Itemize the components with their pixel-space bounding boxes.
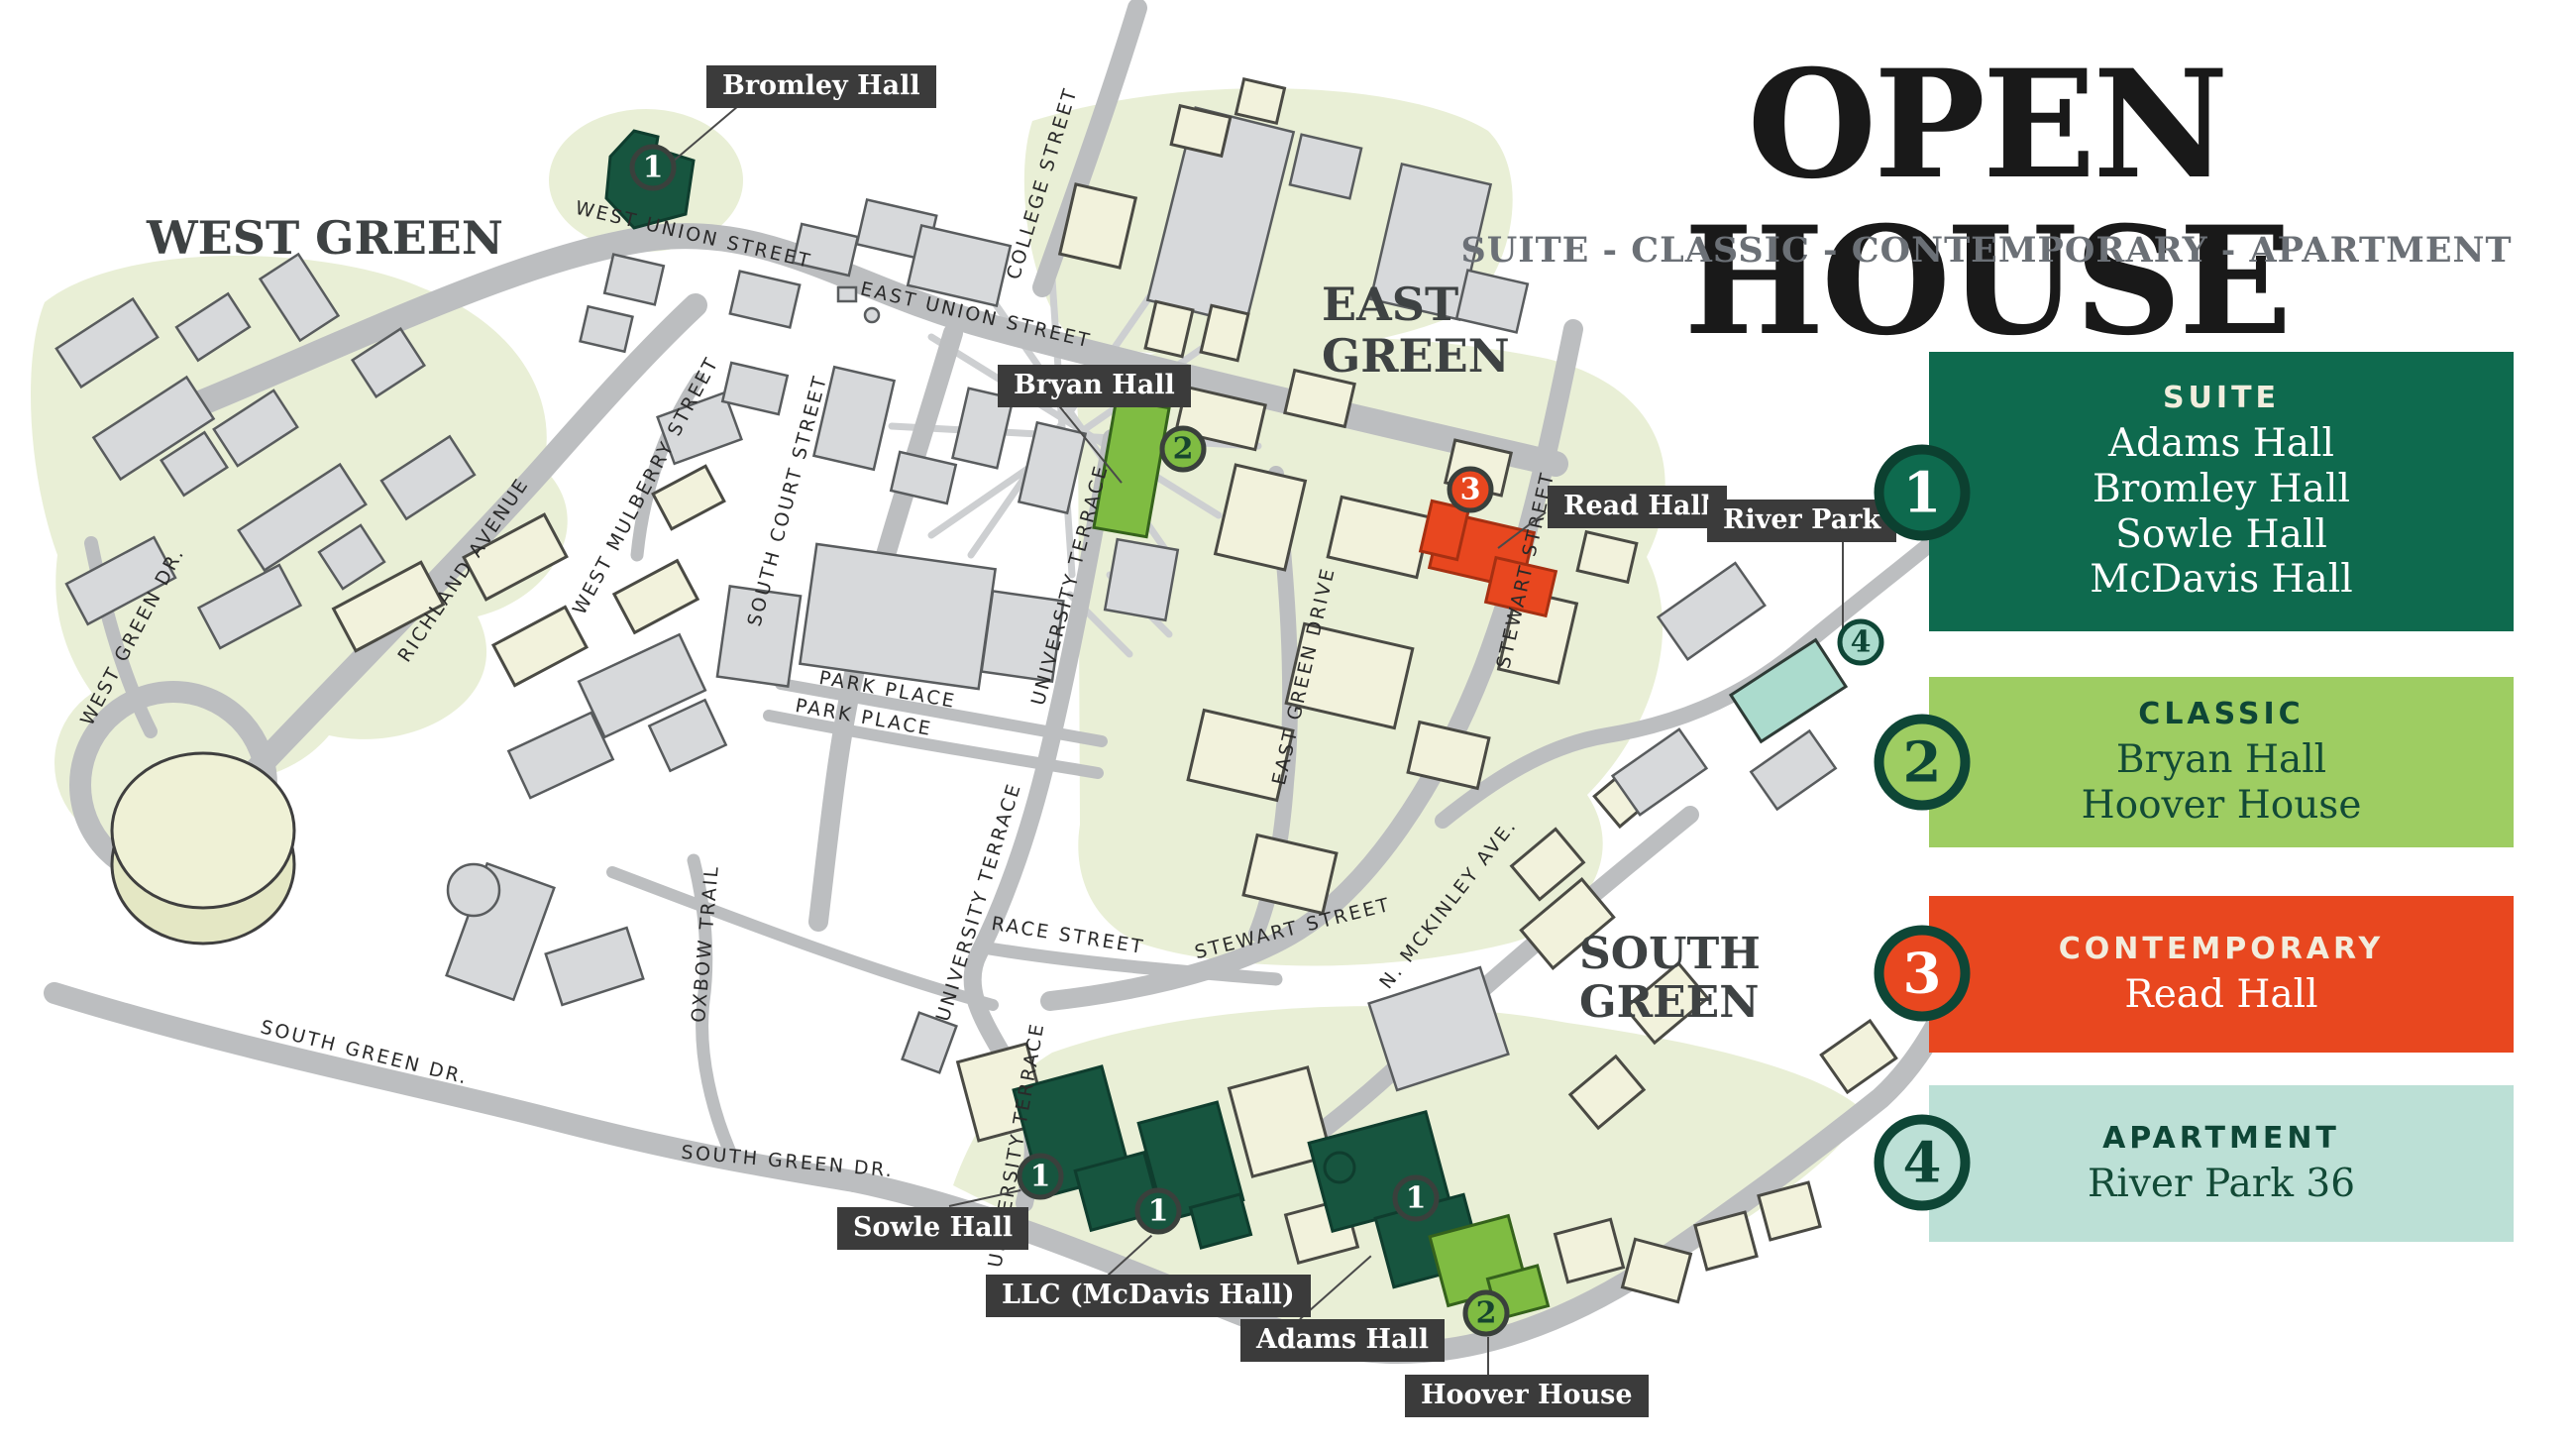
marker-number: 1	[1148, 1194, 1169, 1229]
legend-item: Adams Hall	[1929, 421, 2514, 467]
legend-box-classic: CLASSIC Bryan Hall Hoover House	[1929, 677, 2514, 847]
building-label-sowle-hall: Sowle Hall	[837, 1207, 1028, 1250]
legend-item: River Park 36	[1929, 1162, 2514, 1207]
map-marker-1-bromley: 1	[630, 145, 677, 191]
legend-box-suite: SUITE Adams Hall Bromley Hall Sowle Hall…	[1929, 352, 2514, 631]
stadium	[112, 753, 294, 944]
page-subtitle: SUITE - CLASSIC - CONTEMPORARY - APARTME…	[1442, 230, 2531, 271]
legend-box-contemporary: CONTEMPORARY Read Hall	[1929, 896, 2514, 1053]
legend-box-apartment: APARTMENT River Park 36	[1929, 1085, 2514, 1242]
legend-items: Adams Hall Bromley Hall Sowle Hall McDav…	[1929, 421, 2514, 603]
legend-item: Sowle Hall	[1929, 512, 2514, 558]
legend-category: CLASSIC	[1929, 697, 2514, 731]
region-label-west-green: WEST GREEN	[147, 213, 503, 265]
marker-number: 2	[1173, 432, 1194, 467]
marker-number: 2	[1476, 1296, 1497, 1331]
legend-category: CONTEMPORARY	[1929, 932, 2514, 966]
legend-marker-3: 3	[1875, 926, 1971, 1022]
marker-number: 1	[1903, 460, 1942, 525]
map-marker-1-mcdavis: 1	[1135, 1188, 1182, 1235]
legend-item: Hoover House	[1929, 783, 2514, 829]
legend-item: McDavis Hall	[1929, 557, 2514, 603]
marker-number: 4	[1851, 625, 1872, 660]
region-label-south-green: SOUTH GREEN	[1579, 930, 1817, 1028]
page-title: OPEN HOUSE	[1442, 48, 2531, 360]
map-marker-2-hoover: 2	[1463, 1290, 1510, 1337]
label-leader-line	[1842, 540, 1844, 631]
marker-number: 1	[1030, 1160, 1051, 1194]
marker-number: 3	[1460, 473, 1481, 507]
legend-items: Read Hall	[1929, 972, 2514, 1018]
legend-item: Bryan Hall	[1929, 737, 2514, 783]
marker-number: 1	[643, 151, 664, 185]
legend-items: River Park 36	[1929, 1162, 2514, 1207]
map-marker-1-adams: 1	[1393, 1175, 1440, 1222]
map-marker-3-read: 3	[1448, 467, 1494, 513]
legend-marker-2: 2	[1875, 715, 1971, 811]
open-house-campus-map: WEST UNION STREET EAST UNION STREET COLL…	[0, 0, 2576, 1447]
legend-category: SUITE	[1929, 381, 2514, 415]
map-marker-2-bryan: 2	[1160, 426, 1207, 473]
legend-items: Bryan Hall Hoover House	[1929, 737, 2514, 828]
label-leader-line	[1487, 1337, 1489, 1375]
legend-marker-1: 1	[1875, 445, 1971, 541]
map-marker-4-river-park: 4	[1838, 619, 1884, 666]
marker-number: 2	[1903, 729, 1942, 795]
building-label-river-park: River Park	[1707, 500, 1896, 542]
building-label-adams-hall: Adams Hall	[1240, 1319, 1445, 1362]
building-label-bryan-hall: Bryan Hall	[998, 365, 1191, 407]
building-label-bromley-hall: Bromley Hall	[706, 65, 936, 108]
legend-item: Read Hall	[1929, 972, 2514, 1018]
marker-number: 4	[1903, 1130, 1942, 1195]
legend-item: Bromley Hall	[1929, 467, 2514, 512]
building-label-read-hall: Read Hall	[1548, 486, 1727, 528]
building-label-llc-mcdavis: LLC (McDavis Hall)	[986, 1275, 1311, 1317]
marker-number: 3	[1903, 941, 1942, 1006]
marker-number: 1	[1406, 1181, 1427, 1216]
building-label-hoover-house: Hoover House	[1405, 1375, 1649, 1417]
legend-marker-4: 4	[1875, 1115, 1971, 1211]
legend-category: APARTMENT	[1929, 1121, 2514, 1156]
map-marker-1-sowle: 1	[1018, 1154, 1064, 1200]
